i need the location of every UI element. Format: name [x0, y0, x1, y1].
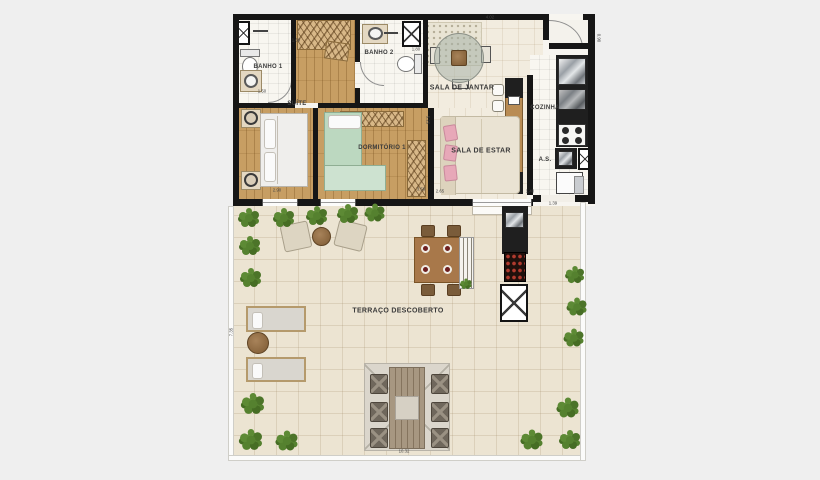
dimension-label: 1.60	[292, 39, 300, 43]
dimension-layer: 4.020.901.601.801.505.252.903.562.651.40…	[0, 0, 820, 480]
dimension-label: 1.39	[549, 202, 557, 206]
room-label-banho2: BANHO 2	[364, 50, 393, 56]
dimension-label: 0.90	[596, 34, 600, 42]
room-label-sala-estar: SALA DE ESTAR	[451, 148, 511, 155]
dimension-label: 3.56	[417, 188, 425, 192]
room-label-banho1: BANHO 1	[253, 64, 282, 70]
dimension-label: 2.65	[436, 190, 444, 194]
floor-plan-canvas: 4.020.901.601.801.505.252.903.562.651.40…	[0, 0, 820, 480]
room-label-terraco: TERRAÇO DESCOBERTO	[352, 308, 443, 315]
room-label-suite: SUÍTE	[287, 101, 306, 107]
dimension-label: 1.50	[258, 90, 266, 94]
dimension-label: 5.25	[425, 116, 429, 124]
dimension-label: 10.32	[399, 450, 410, 454]
dimension-label: 4.02	[486, 16, 494, 20]
dimension-label: 7.35	[230, 328, 234, 336]
room-label-cozinha: COZINHA	[530, 105, 559, 111]
dimension-label: 1.40	[526, 190, 534, 194]
room-label-sala-jantar: SALA DE JANTAR	[430, 85, 494, 92]
dimension-label: 1.80	[412, 48, 420, 52]
room-label-as: A.S.	[539, 157, 552, 163]
dimension-label: 2.90	[273, 189, 281, 193]
room-label-dormitorio1: DORMITÓRIO 1	[358, 145, 406, 151]
